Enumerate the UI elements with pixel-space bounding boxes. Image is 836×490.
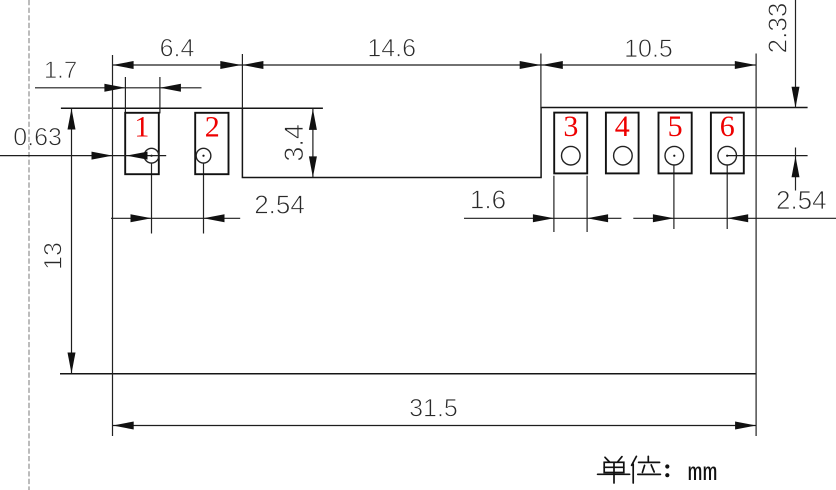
svg-text:2.54: 2.54	[254, 190, 305, 220]
svg-text:10.5: 10.5	[624, 35, 673, 63]
svg-text:3: 3	[563, 110, 578, 143]
svg-text:13: 13	[40, 242, 68, 270]
svg-text:5: 5	[668, 110, 683, 143]
svg-text:1: 1	[134, 111, 149, 144]
svg-text:1.6: 1.6	[470, 185, 506, 215]
svg-text:4: 4	[615, 110, 630, 143]
svg-text:31.5: 31.5	[409, 395, 458, 423]
svg-text:mm: mm	[688, 459, 718, 488]
svg-text:2: 2	[205, 111, 220, 144]
svg-text:0.63: 0.63	[13, 124, 62, 152]
svg-text:2.54: 2.54	[776, 185, 827, 215]
svg-text:3.4: 3.4	[279, 124, 309, 162]
svg-text:6.4: 6.4	[160, 35, 195, 63]
svg-text:6: 6	[720, 110, 735, 143]
svg-text:14.6: 14.6	[367, 35, 416, 63]
svg-text:2.33: 2.33	[763, 3, 793, 54]
svg-text:1.7: 1.7	[44, 57, 77, 84]
